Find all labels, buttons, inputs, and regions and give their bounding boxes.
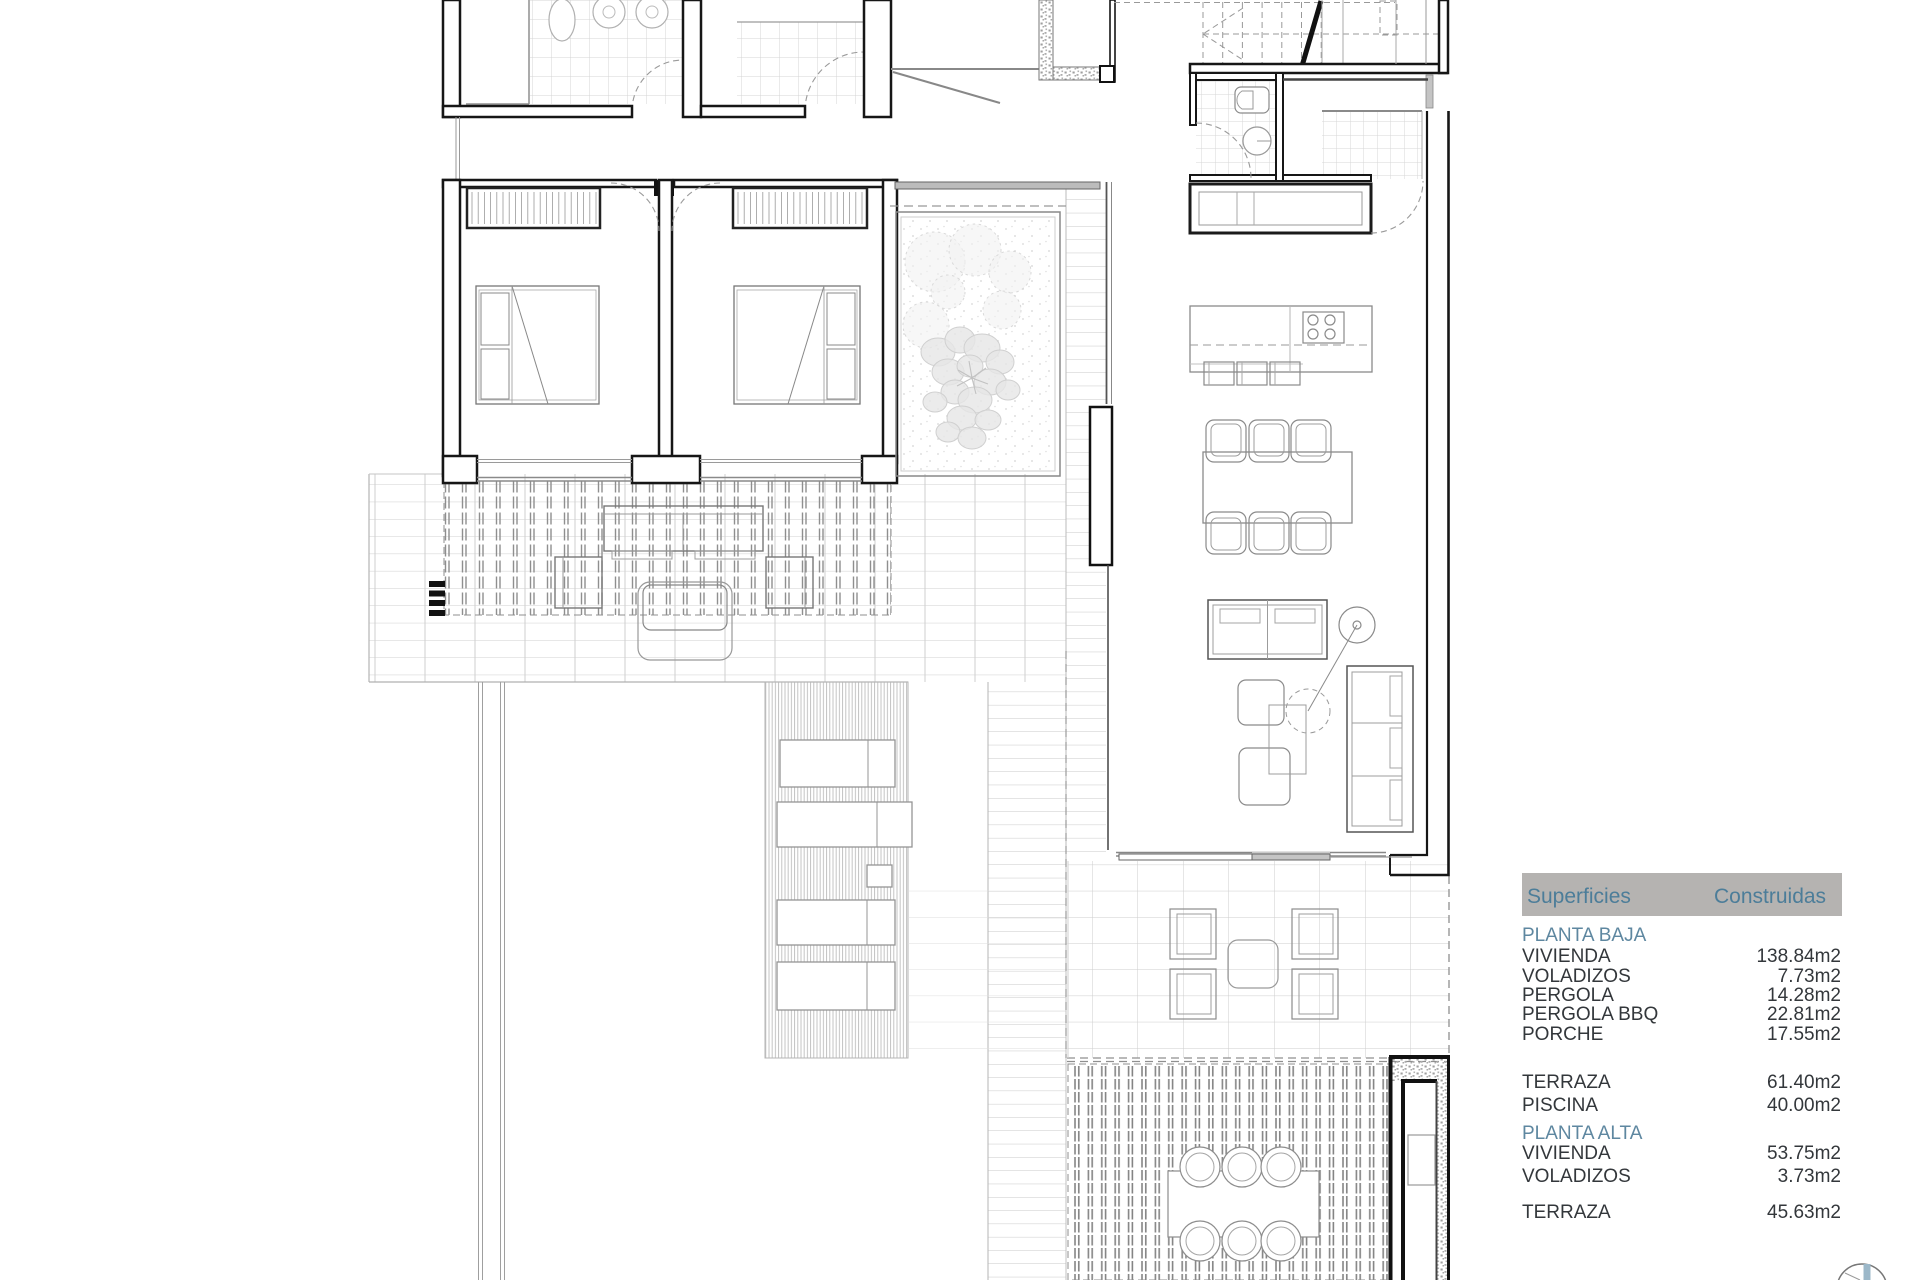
svg-text:PLANTA BAJA: PLANTA BAJA xyxy=(1522,925,1647,946)
svg-text:22.81m2: 22.81m2 xyxy=(1767,1004,1841,1025)
svg-text:53.75m2: 53.75m2 xyxy=(1767,1143,1841,1164)
svg-text:17.55m2: 17.55m2 xyxy=(1767,1024,1841,1045)
svg-text:PISCINA: PISCINA xyxy=(1522,1095,1598,1116)
svg-text:14.28m2: 14.28m2 xyxy=(1767,985,1841,1006)
svg-text:40.00m2: 40.00m2 xyxy=(1767,1095,1841,1116)
svg-text:138.84m2: 138.84m2 xyxy=(1756,946,1841,967)
svg-text:VIVIENDA: VIVIENDA xyxy=(1522,1143,1611,1164)
svg-text:PERGOLA: PERGOLA xyxy=(1522,985,1614,1006)
svg-text:Superficies: Superficies xyxy=(1527,885,1631,908)
svg-text:Construidas: Construidas xyxy=(1714,885,1826,908)
svg-text:PLANTA ALTA: PLANTA ALTA xyxy=(1522,1123,1643,1144)
svg-text:3.73m2: 3.73m2 xyxy=(1778,1166,1841,1187)
svg-text:45.63m2: 45.63m2 xyxy=(1767,1202,1841,1223)
svg-text:TERRAZA: TERRAZA xyxy=(1522,1072,1611,1093)
svg-text:PERGOLA BBQ: PERGOLA BBQ xyxy=(1522,1004,1658,1025)
svg-text:PORCHE: PORCHE xyxy=(1522,1024,1603,1045)
svg-text:VOLADIZOS: VOLADIZOS xyxy=(1522,1166,1631,1187)
svg-text:TERRAZA: TERRAZA xyxy=(1522,1202,1611,1223)
svg-text:7.73m2: 7.73m2 xyxy=(1778,966,1841,987)
svg-text:61.40m2: 61.40m2 xyxy=(1767,1072,1841,1093)
svg-text:VIVIENDA: VIVIENDA xyxy=(1522,946,1611,967)
svg-text:VOLADIZOS: VOLADIZOS xyxy=(1522,966,1631,987)
